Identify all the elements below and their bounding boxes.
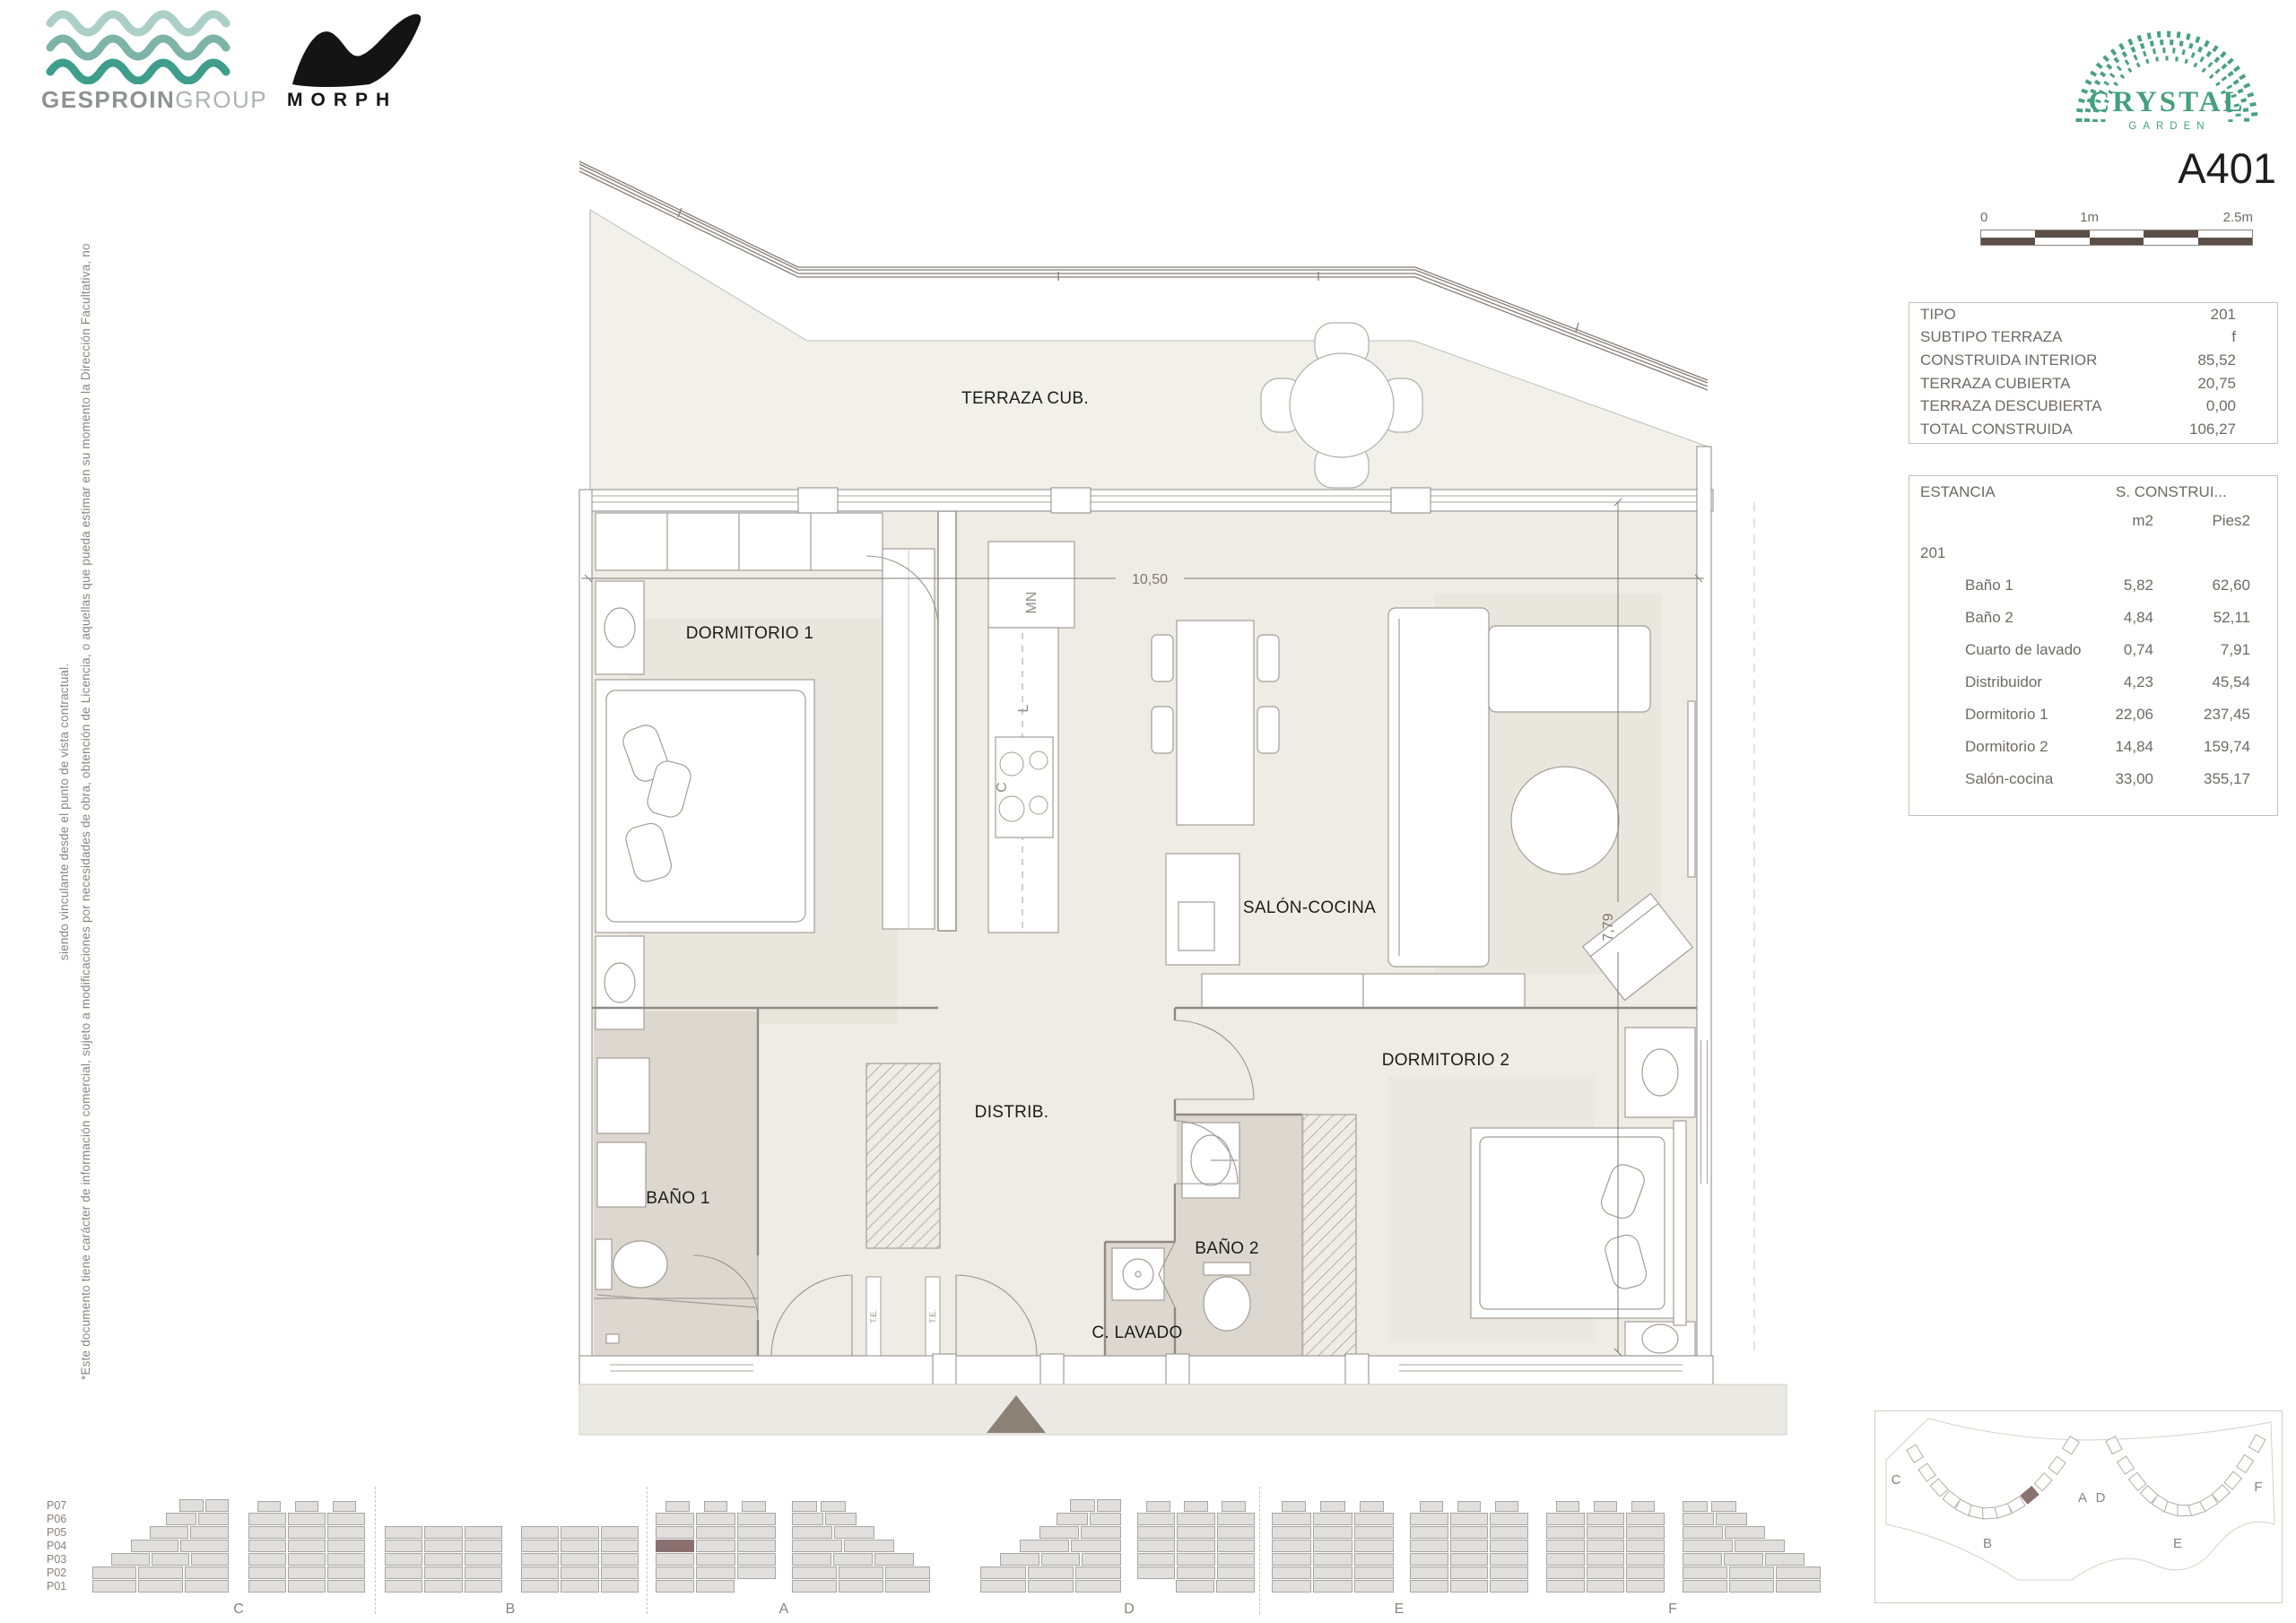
elevation-unit: [1683, 1567, 1727, 1579]
washer: [1112, 1248, 1164, 1300]
block-letter: B: [506, 1601, 516, 1618]
elevation-unit: [696, 1580, 735, 1593]
floor-label: P01: [47, 1580, 86, 1593]
elevation-unit: [248, 1540, 286, 1552]
elevation-unit: [295, 1501, 318, 1512]
elevation-unit: [1683, 1553, 1722, 1566]
elevation-unit: [1217, 1540, 1255, 1552]
elevation-unit: [152, 1553, 189, 1566]
elevation-unit: [327, 1567, 365, 1579]
hall-closet: [866, 1063, 940, 1248]
elevation-unit: [179, 1499, 203, 1512]
elevation-unit: [1729, 1567, 1774, 1579]
elevation-unit: [1097, 1499, 1121, 1512]
elevation-unit: [1724, 1553, 1763, 1566]
elevation-unit: [792, 1526, 832, 1539]
elevation-unit: [1272, 1513, 1311, 1525]
site-block-letter: F: [2254, 1480, 2262, 1495]
elevation-unit: [561, 1553, 598, 1566]
elevation-unit: [424, 1553, 462, 1566]
elevation-unit: [1354, 1513, 1394, 1525]
elevation-unit: [792, 1513, 823, 1525]
elevation-unit: [465, 1580, 502, 1593]
elevation-unit: [288, 1540, 326, 1552]
label-dorm2: DORMITORIO 2: [1382, 1051, 1510, 1070]
elevation-unit: [521, 1526, 559, 1539]
elevation-unit: [1041, 1553, 1081, 1566]
elevation-unit: [1000, 1553, 1039, 1566]
elevation-unit: [1146, 1501, 1170, 1512]
elevation-unit: [424, 1540, 462, 1552]
elevation-unit: [696, 1567, 735, 1579]
elevation-unit: [601, 1553, 639, 1566]
elevation-unit: [1137, 1553, 1175, 1566]
elevation-unit: [1137, 1513, 1175, 1525]
elevation-unit: [1587, 1567, 1625, 1579]
elevation-unit: [1683, 1501, 1708, 1512]
elevation-unit: [1410, 1567, 1448, 1579]
elevation-unit: [191, 1553, 229, 1566]
elevation-unit: [288, 1526, 326, 1539]
elevation-unit: [1546, 1567, 1585, 1579]
elevation-unit: [1450, 1567, 1489, 1579]
elevation-unit: [834, 1526, 874, 1539]
elevation-unit: [1546, 1526, 1585, 1539]
elevation-unit: [1071, 1540, 1121, 1552]
elevation-unit: [1546, 1540, 1585, 1552]
salon-furniture: [1152, 608, 1695, 1008]
elevation-unit: [1490, 1513, 1528, 1525]
elevation-unit: [198, 1513, 229, 1525]
elevation-unit: [742, 1501, 766, 1512]
elevation-unit: [1457, 1501, 1481, 1512]
elevation-unit: [1587, 1553, 1625, 1566]
elevation-unit: [1410, 1540, 1448, 1552]
elevation-unit: [1272, 1553, 1311, 1566]
site-block-letter: E: [2173, 1536, 2182, 1551]
elevation-unit: [1313, 1513, 1352, 1525]
elevation-unit: [288, 1553, 326, 1566]
elevation-unit: [792, 1553, 831, 1566]
elevation-unit: [1420, 1501, 1443, 1512]
elevation-unit: [1272, 1580, 1311, 1593]
elevation-unit: [1410, 1513, 1448, 1525]
elevation-unit: [696, 1540, 735, 1552]
floor-label: P05: [47, 1526, 86, 1539]
elevation-unit: [1450, 1540, 1489, 1552]
elevation-unit: [601, 1580, 639, 1593]
elevation-unit: [138, 1580, 182, 1593]
elevation-unit: [465, 1553, 502, 1566]
elevation-unit: [1626, 1526, 1665, 1539]
elevation-unit: [92, 1580, 136, 1593]
elevation-unit: [92, 1567, 136, 1579]
elevation-unit: [521, 1540, 559, 1552]
elevation-unit: [1184, 1501, 1207, 1512]
site-plan: CBADEF: [1874, 1410, 2283, 1603]
label-salon: SALÓN-COCINA: [1243, 898, 1376, 917]
elevation-unit: [1081, 1526, 1121, 1539]
elevation-unit: [1490, 1540, 1528, 1552]
elevation-unit: [248, 1567, 286, 1579]
elevation-unit: [1776, 1580, 1821, 1593]
floor-label: P07: [47, 1499, 86, 1512]
elevation-unit: [1546, 1553, 1585, 1566]
site-block-letter: A: [2078, 1490, 2087, 1506]
elevation-unit: [737, 1513, 776, 1525]
elevation-unit: [839, 1567, 883, 1579]
elevation-unit: [1631, 1501, 1655, 1512]
elevation-unit: [424, 1567, 462, 1579]
elevation-unit: [601, 1540, 639, 1552]
label-dorm1: DORMITORIO 1: [686, 624, 814, 643]
elevation-unit: [1450, 1553, 1489, 1566]
elevation-unit: [844, 1540, 894, 1552]
elevation-unit: [1137, 1526, 1175, 1539]
elevation-unit: [1082, 1553, 1121, 1566]
elevation-unit: [1028, 1580, 1074, 1593]
elevation-unit: [601, 1567, 639, 1579]
elevation-unit: [1272, 1567, 1311, 1579]
elevation-unit: [1683, 1526, 1723, 1539]
elevation-unit: [1075, 1567, 1121, 1579]
dim-height: 7,79: [1601, 913, 1616, 941]
elevation-unit: [385, 1526, 422, 1539]
block-letter: D: [1124, 1601, 1135, 1618]
label-terraza: TERRAZA CUB.: [961, 389, 1089, 408]
elevation-unit: [1626, 1513, 1665, 1525]
dorm2-closet: [1302, 1115, 1356, 1357]
elevation-unit: [1587, 1540, 1625, 1552]
kitchen-mn-label: MN: [1024, 592, 1039, 614]
elevation-unit: [1028, 1567, 1074, 1579]
elevation-unit: [190, 1526, 229, 1539]
elevation-unit: [1410, 1553, 1448, 1566]
elevation-unit: [1546, 1513, 1585, 1525]
terrace-floor: [590, 210, 1708, 495]
elevation-unit: [1217, 1526, 1255, 1539]
elevation-unit: [385, 1540, 422, 1552]
elevation-unit-highlighted[interactable]: [656, 1540, 694, 1552]
elevation-unit: [656, 1526, 694, 1539]
elevation-unit: [1626, 1580, 1665, 1593]
elevation-unit: [333, 1501, 356, 1512]
elevation-unit: [288, 1513, 326, 1525]
dim-width: 10,50: [1132, 572, 1168, 587]
elevation-unit: [1320, 1501, 1344, 1512]
elevation-unit: [1216, 1580, 1255, 1593]
elevation-unit: [1020, 1540, 1070, 1552]
elevation-unit: [825, 1513, 857, 1525]
elevation-unit: [327, 1513, 365, 1525]
elevation-unit: [1313, 1567, 1352, 1579]
label-distrib: DISTRIB.: [975, 1103, 1049, 1122]
elevation-unit: [737, 1553, 776, 1566]
elevation-unit: [248, 1580, 286, 1593]
elevation-unit: [656, 1553, 694, 1566]
site-block-letter: B: [1983, 1536, 1992, 1551]
elevation-unit: [601, 1526, 639, 1539]
elevation-unit: [327, 1580, 365, 1593]
elevation-unit: [385, 1553, 422, 1566]
elevation-unit: [1272, 1540, 1311, 1552]
kitchen-c-label: C: [995, 782, 1010, 793]
elevation-unit: [385, 1580, 422, 1593]
elevation-unit: [1729, 1580, 1774, 1593]
elevation-unit: [248, 1513, 286, 1525]
elevation-unit: [1354, 1526, 1394, 1539]
elevation-unit: [1626, 1540, 1665, 1552]
elevation-unit: [1057, 1513, 1088, 1525]
elevation-unit: [1360, 1501, 1384, 1512]
elevation-unit: [180, 1540, 229, 1552]
elevation-unit: [465, 1526, 502, 1539]
elevation-unit: [1587, 1513, 1625, 1525]
elevation-unit: [1217, 1513, 1255, 1525]
site-block-letter: D: [2096, 1490, 2106, 1506]
label-lavado: C. LAVADO: [1091, 1324, 1182, 1342]
elevation-unit: [792, 1567, 837, 1579]
elevation-unit: [792, 1580, 837, 1593]
elevation-unit: [792, 1501, 817, 1512]
te-label-2: T.E.: [928, 1309, 937, 1324]
elevation-unit: [1587, 1580, 1625, 1593]
elevation-unit: [1177, 1567, 1214, 1579]
elevation-unit: [1177, 1540, 1214, 1552]
elevation-unit: [561, 1580, 598, 1593]
elevation-unit: [521, 1553, 559, 1566]
kitchen-l-label: L: [1016, 704, 1031, 712]
elevation-unit: [1410, 1526, 1448, 1539]
elevation-unit: [561, 1567, 598, 1579]
elevation-unit: [665, 1501, 690, 1512]
elevation-unit: [1075, 1580, 1121, 1593]
elevation-unit: [1313, 1540, 1352, 1552]
elevation-unit: [1716, 1513, 1747, 1525]
elevation-unit: [1354, 1567, 1394, 1579]
elevation-unit: [1222, 1501, 1245, 1512]
label-bano2: BAÑO 2: [1195, 1238, 1259, 1258]
elevation-unit: [696, 1553, 735, 1566]
elevation-unit: [1490, 1580, 1528, 1593]
elevation-unit: [1177, 1526, 1214, 1539]
elevation-unit: [1039, 1526, 1080, 1539]
elevation-unit: [1495, 1501, 1518, 1512]
elevation-unit: [138, 1567, 182, 1579]
elevation-unit: [166, 1513, 196, 1525]
elevation-unit: [821, 1501, 846, 1512]
elevation-unit: [1137, 1567, 1175, 1579]
elevation-unit: [205, 1499, 229, 1512]
elevation-unit: [737, 1526, 776, 1539]
block-letter: A: [779, 1601, 789, 1618]
elevation-unit: [839, 1580, 883, 1593]
elevation-unit: [1354, 1580, 1394, 1593]
elevation-unit: [1587, 1526, 1625, 1539]
elevation-unit: [1450, 1526, 1489, 1539]
label-bano1: BAÑO 1: [646, 1188, 710, 1208]
elevation-unit: [1490, 1553, 1528, 1566]
elevation-unit: [1137, 1540, 1175, 1552]
elevation-unit: [257, 1501, 281, 1512]
elevation-unit: [656, 1513, 694, 1525]
te-label-1: T.E.: [869, 1309, 878, 1324]
elevation-unit: [288, 1580, 326, 1593]
elevation-unit: [1626, 1567, 1665, 1579]
elevation-unit: [1683, 1513, 1714, 1525]
plan-sheet: GESPROINGROUP MORPH CRYSTAL GARDEN A401 …: [0, 0, 2296, 1623]
block-letter: C: [233, 1601, 244, 1618]
elevation-unit: [185, 1567, 229, 1579]
elevation-unit: [185, 1580, 229, 1593]
elevation-unit: [131, 1540, 179, 1552]
elevation-unit: [1765, 1553, 1805, 1566]
elevation-unit: [696, 1526, 735, 1539]
elevation-unit: [1490, 1526, 1528, 1539]
elevation-unit: [1217, 1553, 1255, 1566]
elevation-unit: [1282, 1501, 1306, 1512]
elevation-unit: [885, 1580, 930, 1593]
elevation-unit: [1313, 1553, 1352, 1566]
elevation-unit: [885, 1567, 930, 1579]
floor-label: P03: [47, 1553, 86, 1566]
elevation-unit: [1217, 1567, 1255, 1579]
elevation-unit: [1626, 1553, 1665, 1566]
elevation-unit: [980, 1580, 1026, 1593]
block-letter: F: [1668, 1601, 1677, 1618]
elevation-unit: [1776, 1567, 1821, 1579]
elevation-unit: [792, 1540, 842, 1552]
elevation-unit: [1410, 1580, 1448, 1593]
elevation-unit: [1683, 1540, 1733, 1552]
elevation-unit: [833, 1553, 873, 1566]
elevation-unit: [521, 1567, 559, 1579]
elevation-unit: [1735, 1540, 1785, 1552]
elevation-unit: [424, 1526, 462, 1539]
elevation-unit: [737, 1567, 776, 1579]
elevation-unit: [150, 1526, 188, 1539]
elevation-unit: [1176, 1580, 1214, 1593]
elevation-unit: [1354, 1540, 1394, 1552]
floor-label: P02: [47, 1567, 86, 1579]
elevation-unit: [696, 1513, 735, 1525]
elevation-unit: [288, 1567, 326, 1579]
floor-plan-drawing: MN L C: [0, 0, 2296, 1623]
elevation-unit: [1711, 1501, 1736, 1512]
elevation-unit: [656, 1567, 694, 1579]
elevation-unit: [1090, 1513, 1121, 1525]
elevation-unit: [737, 1540, 776, 1552]
elevation-unit: [1070, 1499, 1094, 1512]
elevation-unit: [111, 1553, 149, 1566]
elevation-unit: [561, 1526, 598, 1539]
elevation-unit: [656, 1580, 694, 1593]
floor-label: P04: [47, 1540, 86, 1552]
elevation-unit: [248, 1526, 286, 1539]
elevation-unit: [1450, 1513, 1489, 1525]
adjacent-strip: [579, 1384, 1787, 1435]
elevation-unit: [465, 1567, 502, 1579]
elevation-unit: [327, 1526, 365, 1539]
site-block-letter: C: [1892, 1472, 1901, 1488]
elevation-unit: [1683, 1580, 1727, 1593]
elevation-unit: [1272, 1526, 1311, 1539]
elevation-unit: [327, 1553, 365, 1566]
elevation-unit: [1556, 1501, 1579, 1512]
elevation-unit: [1490, 1567, 1528, 1579]
elevation-unit: [1725, 1526, 1765, 1539]
elevation-unit: [248, 1553, 286, 1566]
elevation-unit: [1546, 1580, 1585, 1593]
elevation-unit: [465, 1540, 502, 1552]
building-elevations: P07P06P05P04P03P02P01CBADEF: [0, 1480, 1865, 1623]
floor-label: P06: [47, 1513, 86, 1525]
elevation-unit: [1177, 1513, 1214, 1525]
elevation-unit: [424, 1580, 462, 1593]
elevation-unit: [1313, 1526, 1352, 1539]
elevation-unit: [561, 1540, 598, 1552]
elevation-unit: [980, 1567, 1026, 1579]
elevation-unit: [1177, 1553, 1214, 1566]
elevation-unit: [521, 1580, 559, 1593]
elevation-unit: [327, 1540, 365, 1552]
elevation-unit: [385, 1567, 422, 1579]
elevation-unit: [1594, 1501, 1617, 1512]
block-letter: E: [1395, 1601, 1405, 1618]
elevation-unit: [704, 1501, 728, 1512]
elevation-unit: [1354, 1553, 1394, 1566]
elevation-unit: [874, 1553, 914, 1566]
elevation-unit: [1450, 1580, 1489, 1593]
elevation-unit: [1313, 1580, 1352, 1593]
